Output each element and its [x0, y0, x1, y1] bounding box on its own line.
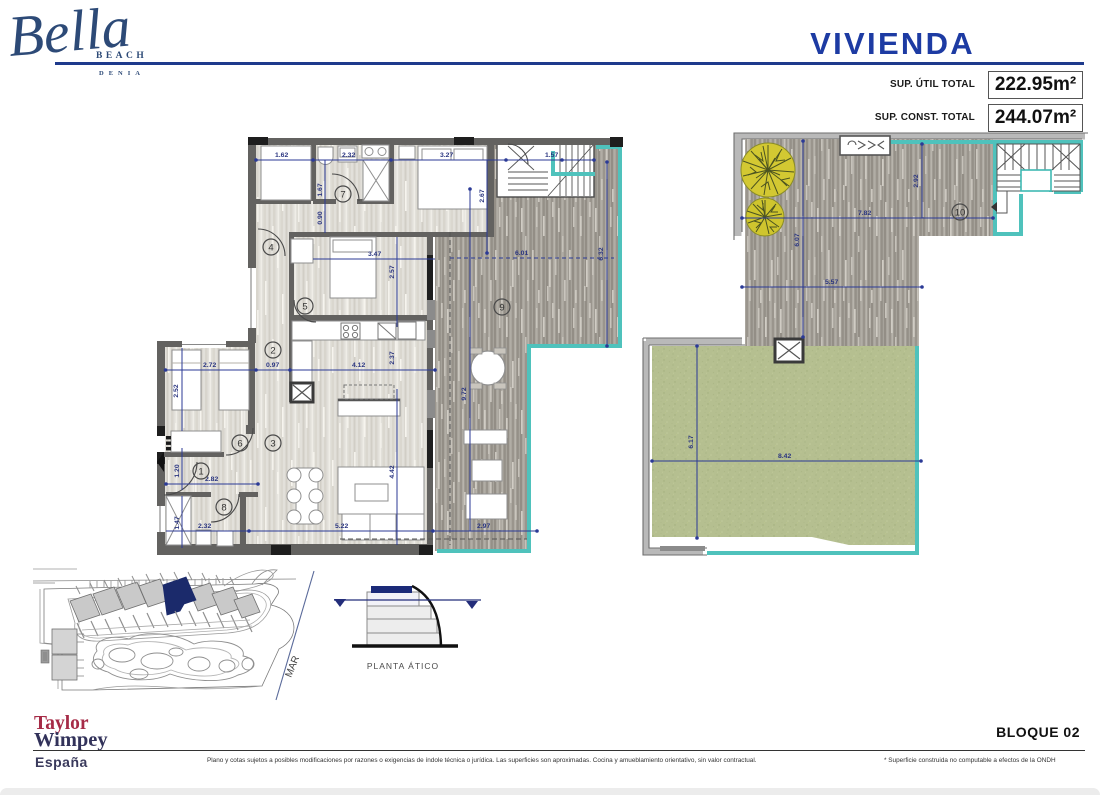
svg-text:5.57: 5.57	[825, 279, 838, 286]
svg-text:3.27: 3.27	[440, 152, 453, 159]
svg-text:5.22: 5.22	[335, 523, 348, 530]
svg-text:2.57: 2.57	[389, 265, 396, 278]
svg-text:1: 1	[198, 467, 203, 478]
svg-text:3.47: 3.47	[368, 251, 381, 258]
svg-text:5: 5	[302, 302, 307, 313]
svg-text:2.72: 2.72	[203, 362, 216, 369]
svg-text:4.12: 4.12	[352, 362, 365, 369]
svg-text:2.67: 2.67	[479, 189, 486, 202]
svg-text:2.32: 2.32	[198, 523, 211, 530]
svg-text:2: 2	[270, 346, 275, 357]
svg-text:2.32: 2.32	[342, 152, 355, 159]
svg-text:2.92: 2.92	[913, 174, 920, 187]
svg-text:7.82: 7.82	[858, 210, 871, 217]
svg-text:4: 4	[268, 243, 273, 254]
svg-text:MAR: MAR	[284, 654, 303, 679]
svg-text:2.52: 2.52	[173, 384, 180, 397]
svg-text:PLANTA ÁTICO: PLANTA ÁTICO	[367, 661, 439, 671]
svg-text:1.57: 1.57	[545, 152, 558, 159]
svg-text:2.37: 2.37	[389, 351, 396, 364]
svg-text:6.32: 6.32	[598, 247, 605, 260]
svg-text:4.42: 4.42	[389, 465, 396, 478]
svg-text:6.17: 6.17	[688, 435, 695, 448]
svg-text:1.47: 1.47	[174, 516, 181, 529]
svg-text:6.01: 6.01	[515, 250, 528, 257]
svg-text:10: 10	[955, 208, 966, 219]
svg-text:6: 6	[237, 439, 242, 450]
svg-text:9.72: 9.72	[461, 387, 468, 400]
svg-text:6.07: 6.07	[794, 233, 801, 246]
svg-text:9: 9	[499, 303, 504, 314]
svg-text:8.42: 8.42	[778, 453, 791, 460]
svg-text:0.97: 0.97	[266, 362, 279, 369]
svg-text:8: 8	[221, 503, 226, 514]
svg-text:0.90: 0.90	[317, 211, 324, 224]
svg-text:3: 3	[270, 439, 275, 450]
svg-text:7: 7	[340, 190, 345, 201]
svg-text:1.67: 1.67	[317, 183, 324, 196]
svg-text:2.97: 2.97	[477, 523, 490, 530]
svg-text:1.62: 1.62	[275, 152, 288, 159]
svg-text:1.20: 1.20	[174, 464, 181, 477]
